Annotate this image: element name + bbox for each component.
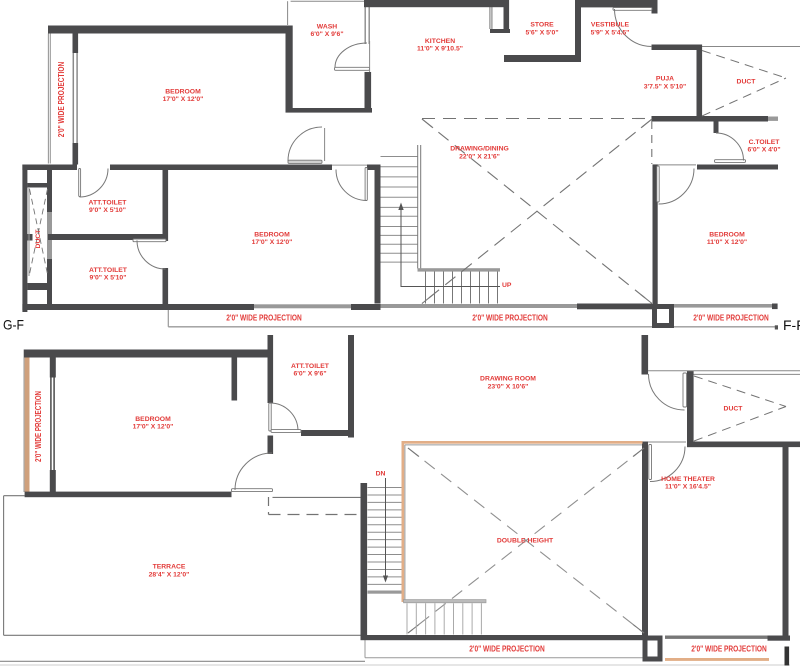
svg-text:2'0" WIDE PROJECTION: 2'0" WIDE PROJECTION [226, 312, 302, 322]
svg-text:2'0" WIDE PROJECTION: 2'0" WIDE PROJECTION [33, 391, 43, 462]
svg-text:2'0" WIDE PROJECTION: 2'0" WIDE PROJECTION [691, 644, 767, 654]
svg-text:BEDROOM: BEDROOM [165, 89, 201, 96]
svg-text:BEDROOM: BEDROOM [135, 416, 171, 423]
svg-text:11'0" X 9'10.5": 11'0" X 9'10.5" [417, 46, 463, 53]
svg-text:9'0" X 5'10": 9'0" X 5'10" [89, 207, 126, 214]
svg-text:6'0" X 9'6": 6'0" X 9'6" [310, 31, 343, 38]
svg-text:DUCT: DUCT [724, 406, 744, 413]
svg-text:BEDROOM: BEDROOM [254, 231, 290, 238]
svg-text:5'9" X 5'4.5": 5'9" X 5'4.5" [591, 30, 630, 37]
svg-text:ATT.TOILET: ATT.TOILET [291, 363, 330, 370]
svg-text:DUCT: DUCT [737, 79, 757, 86]
svg-text:STORE: STORE [530, 22, 554, 29]
svg-text:11'0" X 12'0": 11'0" X 12'0" [707, 239, 747, 246]
svg-text:28'4" X 12'0": 28'4" X 12'0" [149, 572, 190, 579]
svg-text:17'0" X 12'0": 17'0" X 12'0" [163, 96, 204, 103]
svg-text:TERRACE: TERRACE [153, 564, 186, 571]
svg-text:22'0" X 21'6": 22'0" X 21'6" [459, 154, 500, 161]
svg-text:F-F: F-F [783, 317, 800, 333]
svg-text:2'0" WIDE PROJECTION: 2'0" WIDE PROJECTION [469, 644, 545, 654]
svg-text:PUJA: PUJA [656, 76, 674, 83]
svg-text:KITCHEN: KITCHEN [425, 38, 455, 45]
svg-text:C.TOILET: C.TOILET [749, 139, 781, 146]
svg-text:DOUBLE HEIGHT: DOUBLE HEIGHT [497, 537, 554, 544]
svg-text:11'0" X 16'4.5": 11'0" X 16'4.5" [665, 484, 711, 491]
svg-text:9'0" X 5'10": 9'0" X 5'10" [90, 275, 127, 282]
svg-text:G-F: G-F [3, 316, 24, 332]
svg-text:DUCT: DUCT [35, 229, 42, 249]
svg-text:17'0" X 12'0": 17'0" X 12'0" [252, 239, 293, 246]
svg-text:6'0" X 4'0": 6'0" X 4'0" [747, 147, 780, 154]
svg-text:6'0" X 9'6": 6'0" X 9'6" [293, 371, 326, 378]
svg-text:WASH: WASH [317, 24, 337, 31]
svg-text:2'0" WIDE PROJECTION: 2'0" WIDE PROJECTION [56, 62, 66, 138]
svg-text:17'0" X 12'0": 17'0" X 12'0" [133, 424, 174, 431]
svg-text:DRAWING/DINING: DRAWING/DINING [450, 146, 509, 153]
svg-text:ATT.TOILET: ATT.TOILET [89, 267, 128, 274]
svg-text:2'0" WIDE PROJECTION: 2'0" WIDE PROJECTION [472, 312, 548, 322]
svg-text:DN: DN [376, 471, 386, 478]
svg-text:HOME THEATER: HOME THEATER [661, 476, 715, 483]
svg-text:VESTIBULE: VESTIBULE [591, 22, 630, 29]
svg-text:ATT.TOILET: ATT.TOILET [89, 200, 128, 207]
svg-text:BEDROOM: BEDROOM [709, 232, 745, 239]
svg-text:23'0" X 10'6": 23'0" X 10'6" [488, 384, 529, 391]
svg-text:UP: UP [502, 282, 512, 289]
svg-text:5'6" X 5'0": 5'6" X 5'0" [525, 30, 558, 37]
svg-text:2'0" WIDE PROJECTION: 2'0" WIDE PROJECTION [693, 312, 769, 322]
svg-text:3'7.5" X 5'10": 3'7.5" X 5'10" [644, 84, 687, 91]
svg-text:DRAWING ROOM: DRAWING ROOM [480, 376, 536, 383]
